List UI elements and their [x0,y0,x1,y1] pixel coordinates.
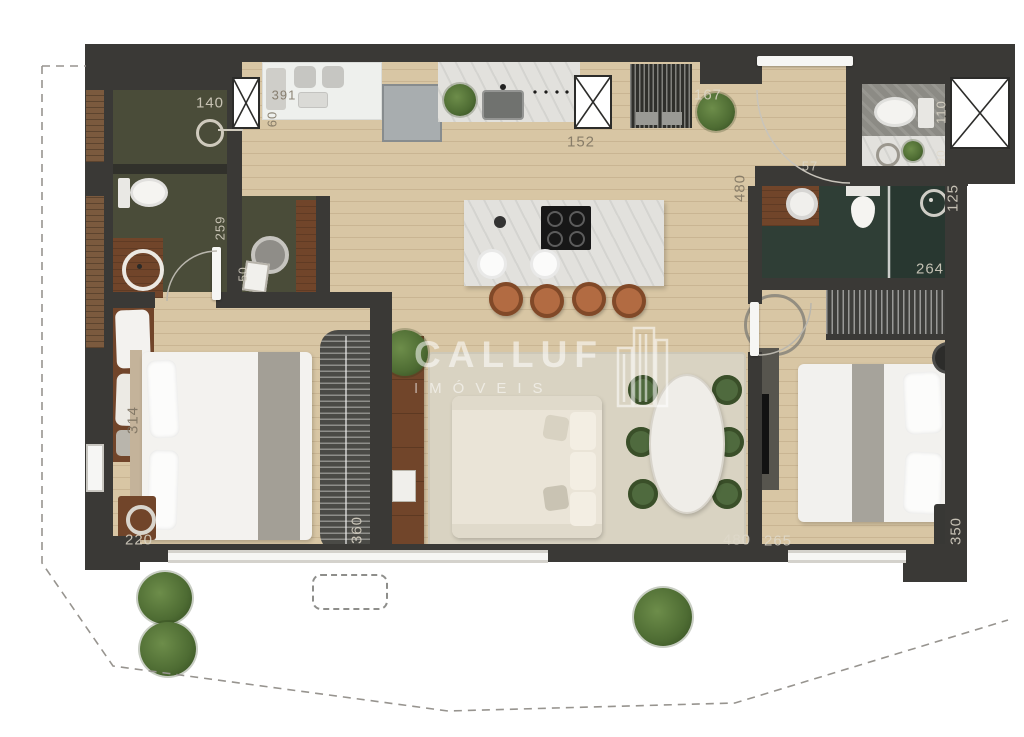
wall [233,44,707,62]
service-shelf [113,164,227,174]
burner-icon [547,211,563,227]
floor-plan: CALLUF IMÓVEIS 1403916015216748011090571… [0,0,1024,737]
wall [370,296,392,548]
dimension-label: 152 [567,134,595,151]
suite-closet [826,288,948,334]
wall [113,292,155,308]
door-leaf [212,247,221,300]
dimension-label: 360 [349,516,366,544]
decor-books [392,470,416,502]
door-leaf [750,302,759,356]
wall [903,544,967,582]
sofa [452,396,602,538]
washbasin-icon [786,188,818,220]
dimension-label: 90 [934,149,948,164]
wall [757,278,950,290]
wall [748,352,762,546]
wall [700,44,762,84]
sofa-back-cushion [570,492,596,526]
dimension-label: 350 [948,517,965,545]
wall [755,166,968,186]
future-equipment-outline [312,574,388,610]
burner-icon [547,231,563,247]
terrace-bush-icon [140,622,196,676]
wall [227,58,242,296]
plate [477,249,507,279]
burner-knobs-icon [530,88,570,96]
bar-stool [530,284,564,318]
sink-icon [482,90,524,120]
dimension-label: 50 [236,266,250,281]
washbasin-icon [876,143,900,167]
sofa-back-cushion [570,452,596,490]
bed-throw [258,352,300,540]
bar-stool [489,282,523,316]
sofa-arm [452,396,602,410]
dining-table [649,374,725,514]
dimension-label: 265 [764,533,792,550]
wardrobe-rod [345,336,347,546]
dimension-label: 220 [125,532,153,549]
toilet-icon [130,178,168,207]
sofa-arm [452,524,602,538]
bar-stool [612,284,646,318]
dimension-label: 314 [125,406,142,434]
sliding-door [788,550,906,563]
terrace-plant-icon [634,588,692,646]
dimension-label: 57 [802,159,818,174]
throw-pillow [542,484,569,511]
dimension-label: 167 [694,87,722,104]
tv-icon [761,394,769,474]
dining-chair [628,375,658,405]
wall [945,58,967,558]
pillow [146,359,180,438]
desk [296,200,316,298]
dimension-label: 110 [934,100,949,124]
plate [294,66,316,88]
moka-pot-icon [494,216,506,228]
shower-icon [929,198,933,202]
dimension-label: 264 [916,261,944,278]
plate [530,249,560,279]
pillow [902,371,943,435]
dimension-label: 391 [272,88,297,103]
burner-icon [569,231,585,247]
shoe-bench [636,112,658,125]
faucet-icon [500,84,506,90]
toilet-icon [874,97,916,127]
shoe-bench [662,112,682,125]
bar-stool [572,282,606,316]
pendant-light-icon [196,119,224,147]
bed [798,360,950,526]
dimension-label: 480 [723,532,751,549]
wall [846,58,862,168]
dimension-label: 259 [213,216,228,241]
fridge-icon [382,84,442,142]
wall [826,334,950,340]
plant-icon [444,84,476,116]
throw-pillow [542,414,570,442]
toilet-icon [118,178,130,208]
cooktop-icon [541,206,591,250]
washbasin-icon [122,249,164,291]
terrace-bush-icon [138,572,192,624]
toilet-icon [918,98,934,128]
sofa-back-cushion [570,412,596,450]
entry-door-leaf [757,56,853,66]
window [86,196,104,348]
faucet-icon [137,264,142,269]
dimension-label: 125 [945,184,962,212]
table-lamp-icon [126,505,156,535]
wall [216,292,392,308]
burner-icon [569,211,585,227]
dining-chair [628,479,658,509]
plant-icon [903,141,923,161]
bed-runner [852,364,884,522]
terrace-floor [118,550,958,712]
bed [130,350,312,542]
dimension-label: 60 [265,111,280,127]
window [86,90,104,162]
dimension-label: 480 [732,174,749,202]
dish-stack [298,92,328,108]
sliding-door [168,550,548,563]
dimension-label: 140 [196,95,224,112]
plate [322,66,344,88]
window [86,444,104,492]
